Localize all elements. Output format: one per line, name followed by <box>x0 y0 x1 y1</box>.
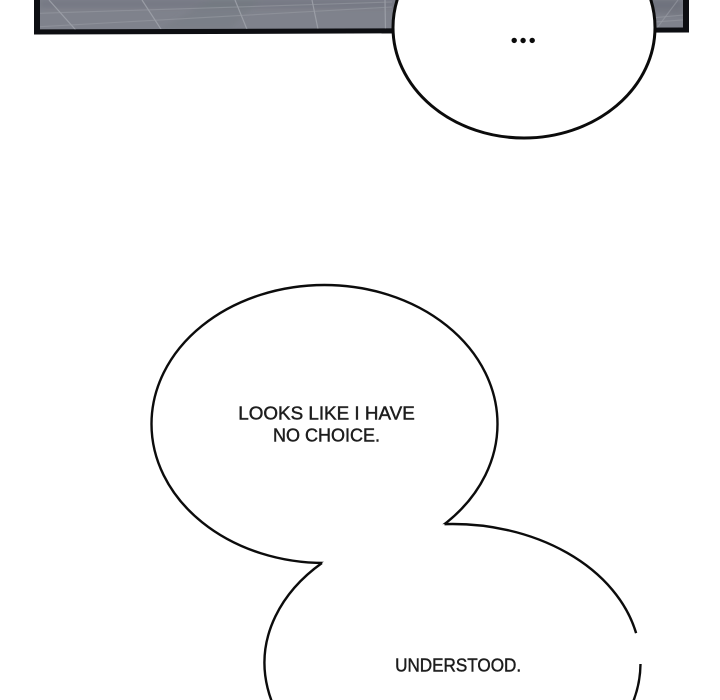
svg-text:UNDERSTOOD.: UNDERSTOOD. <box>395 655 521 676</box>
svg-text:NO CHOICE.: NO CHOICE. <box>273 425 380 446</box>
svg-text:LOOKS LIKE I HAVE: LOOKS LIKE I HAVE <box>238 402 415 423</box>
